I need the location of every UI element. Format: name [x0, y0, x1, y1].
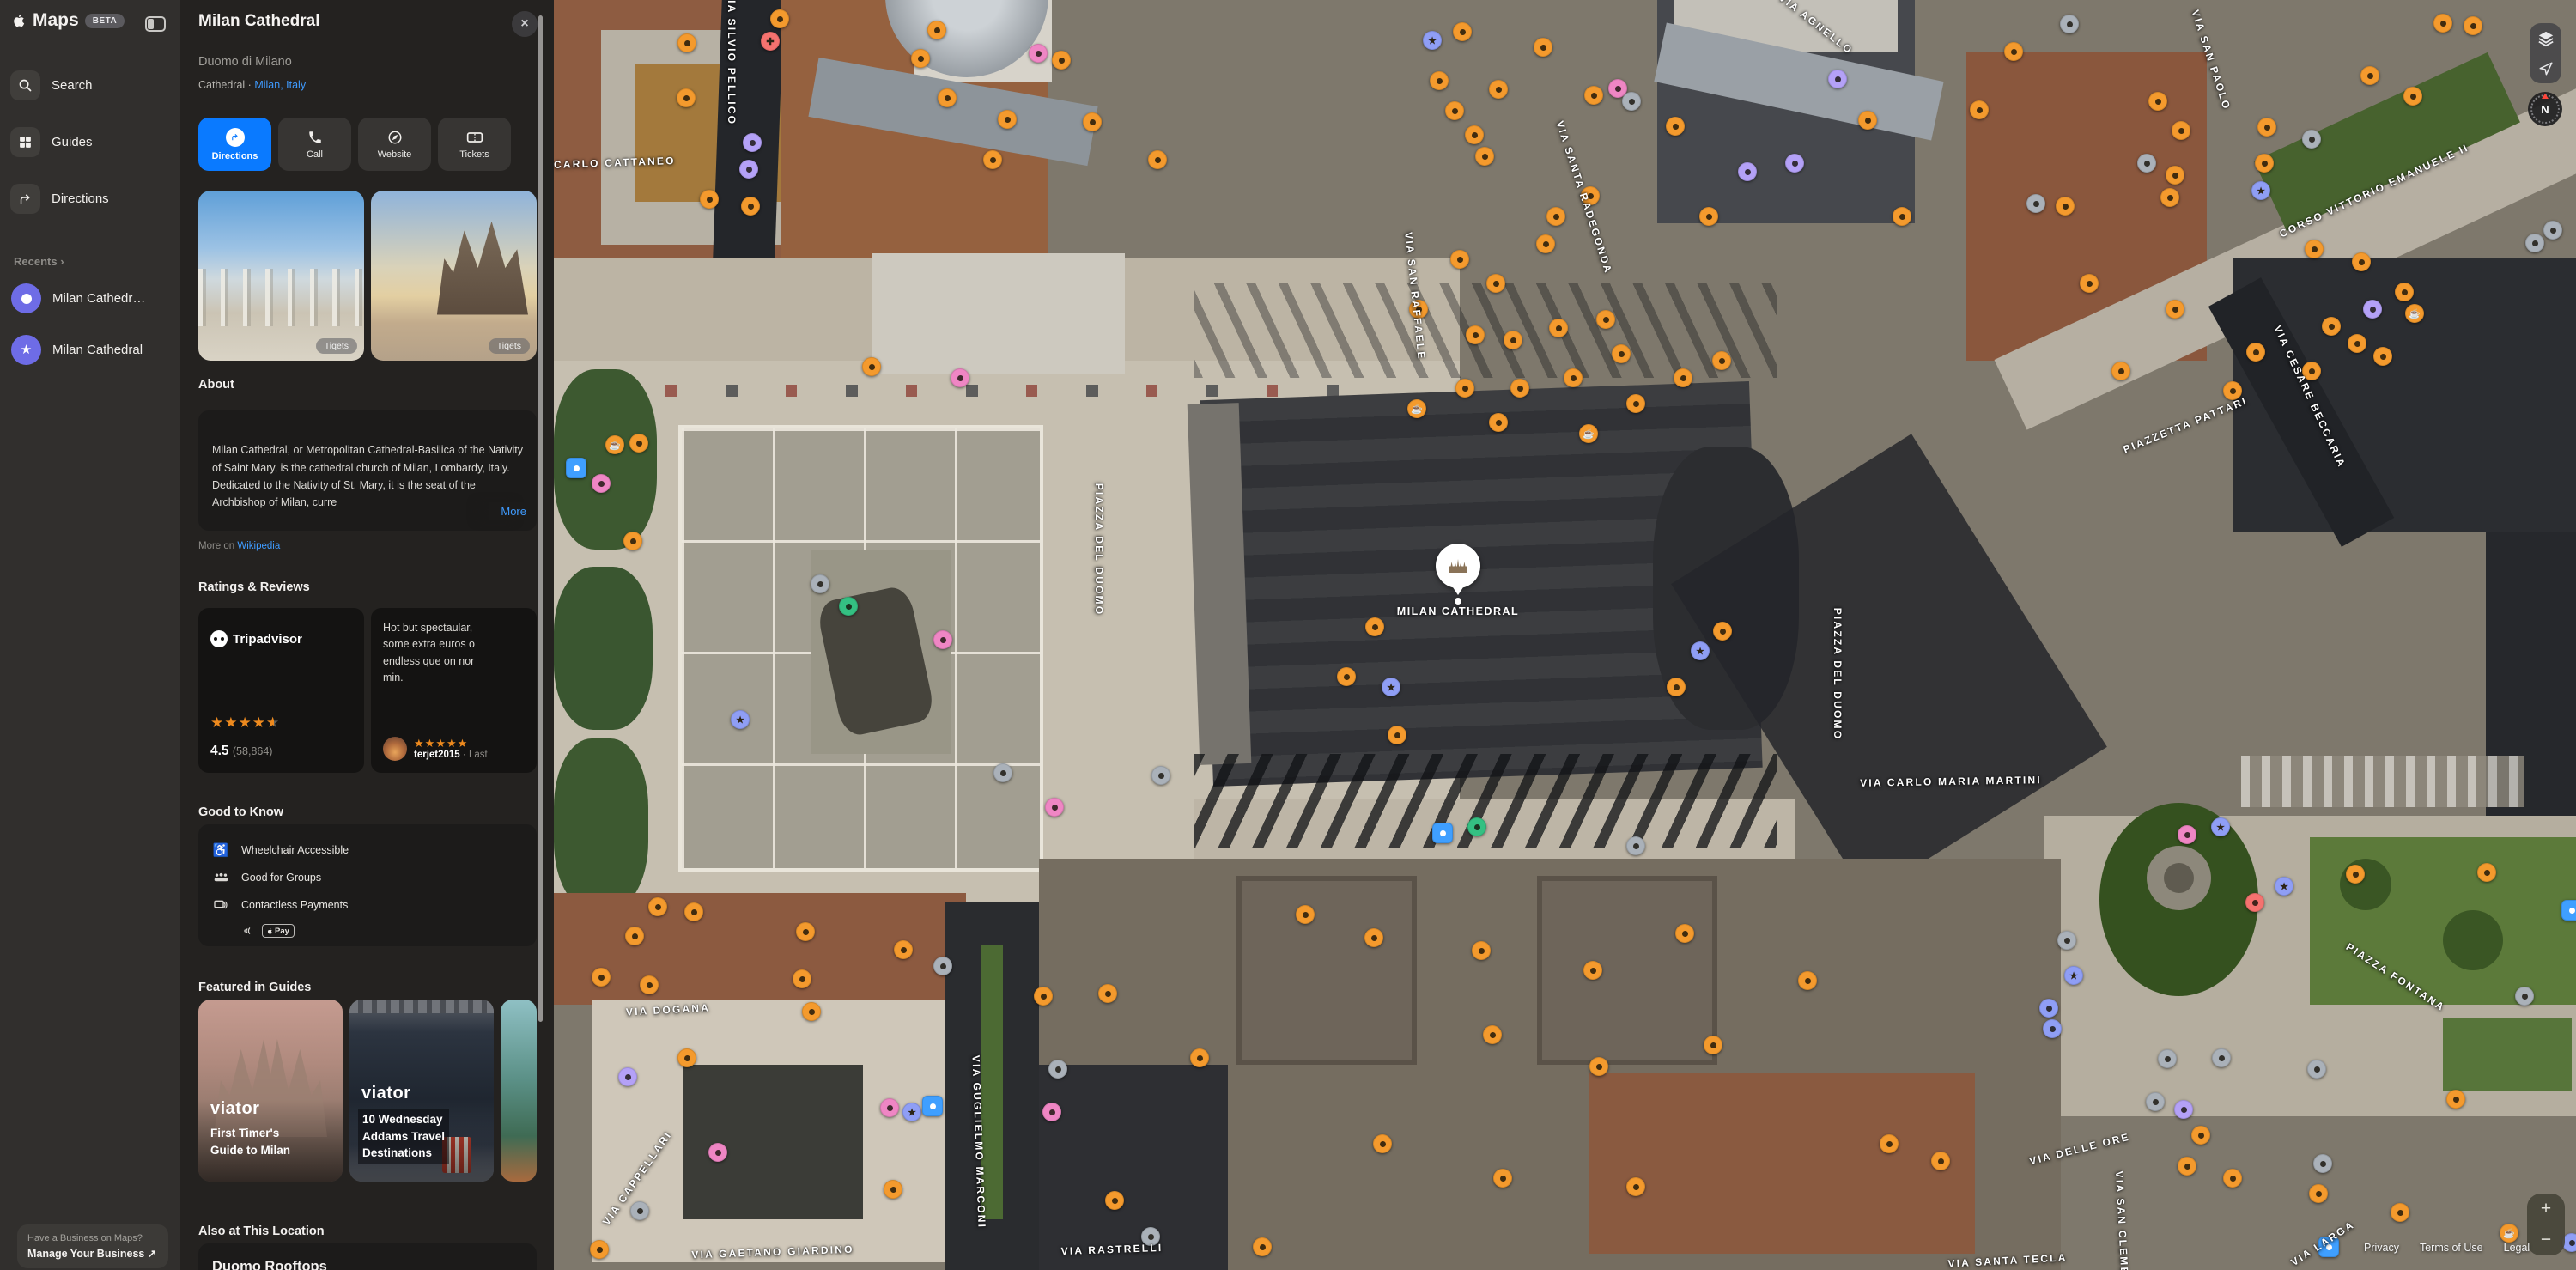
street-label: VIA SANTA TECLA — [1947, 1251, 2068, 1269]
sidebar-item-directions[interactable]: Directions — [10, 184, 109, 214]
star-icon: ★ — [458, 737, 469, 750]
map-poi-marker[interactable]: ★ — [1691, 641, 1710, 660]
map-poi-marker[interactable] — [1430, 71, 1449, 90]
reviews-heading: Ratings & Reviews — [198, 580, 310, 594]
star-icon: ★ — [239, 714, 252, 731]
map-poi-marker[interactable] — [741, 197, 760, 216]
map-poi-marker[interactable] — [2391, 1203, 2409, 1222]
cathedral-silhouette — [437, 222, 528, 315]
compass-control[interactable]: N — [2528, 92, 2562, 126]
street-label: PIAZZA DEL DUOMO — [1093, 483, 1105, 617]
map-poi-marker[interactable] — [1589, 1057, 1608, 1076]
map-poi-marker[interactable] — [2057, 931, 2076, 950]
map-poi-marker[interactable] — [1432, 823, 1453, 843]
map-poi-marker[interactable] — [2307, 1060, 2326, 1079]
map-poi-marker[interactable] — [2543, 221, 2562, 240]
map-poi-marker[interactable] — [640, 975, 659, 994]
map-poi-marker[interactable] — [629, 434, 648, 453]
guide-card[interactable] — [501, 1000, 537, 1182]
map-poi-marker[interactable] — [2305, 240, 2324, 258]
amenity-row: Contactless Payments — [212, 891, 523, 919]
map-poi-marker[interactable] — [1042, 1103, 1061, 1121]
map-poi-marker[interactable] — [623, 532, 642, 550]
map-poi-marker[interactable] — [2056, 197, 2075, 216]
map-poi-marker[interactable] — [2178, 825, 2196, 844]
map-poi-marker[interactable] — [2043, 1019, 2062, 1038]
map-poi-marker[interactable] — [700, 190, 719, 209]
map-poi-marker[interactable]: ★ — [2275, 877, 2293, 896]
cathedral-spires-texture — [198, 269, 364, 326]
viator-logo: viator — [210, 1099, 259, 1119]
map-poi-marker[interactable] — [1453, 22, 1472, 41]
street-label: VIA SAN PAOLO — [2189, 9, 2233, 112]
map-poi-marker[interactable] — [922, 1096, 943, 1116]
map-poi-marker[interactable] — [1493, 1169, 1512, 1188]
street-label: VIA SAN CLEMENTE — [2113, 1170, 2132, 1270]
street-label: PIAZZA FONTANA — [2344, 940, 2448, 1013]
map-poi-marker[interactable] — [1253, 1237, 1272, 1256]
map-poi-marker[interactable] — [708, 1143, 727, 1162]
map-poi-marker[interactable] — [1034, 987, 1053, 1006]
star-icon: ★ — [210, 714, 224, 731]
phone-icon — [307, 130, 323, 145]
sidebar-item-label: Search — [52, 78, 93, 93]
also-here-heading: Also at This Location — [198, 1224, 325, 1238]
photo-credit-badge: Tiqets — [316, 338, 357, 354]
map-poi-marker[interactable] — [1970, 100, 1989, 119]
map-poi-marker[interactable] — [1626, 394, 1645, 413]
about-more-link[interactable]: More — [489, 502, 526, 520]
map-poi-marker[interactable] — [1536, 234, 1555, 253]
map-poi-marker[interactable] — [1713, 622, 1732, 641]
manage-business-link[interactable]: Manage Your Business ↗ — [27, 1247, 161, 1260]
sidebar-item-search[interactable]: Search — [10, 70, 93, 100]
map-poi-marker[interactable] — [2004, 42, 2023, 61]
map-poi-marker[interactable] — [2246, 343, 2265, 362]
zoom-out-button[interactable]: − — [2541, 1230, 2551, 1250]
chevron-right-icon: › — [60, 255, 64, 268]
map-poi-marker[interactable] — [1365, 617, 1384, 636]
street-label: VIA LARGA — [2288, 1218, 2356, 1268]
map-poi-marker[interactable]: ★ — [902, 1103, 921, 1121]
map-poi-marker[interactable] — [2172, 121, 2190, 140]
place-photo[interactable]: Tiqets — [371, 191, 537, 361]
sidebar-item-guides[interactable]: Guides — [10, 127, 93, 157]
map-poi-marker[interactable] — [1364, 928, 1383, 947]
film-strip-texture — [349, 1000, 494, 1013]
map-poi-marker[interactable] — [630, 1201, 649, 1220]
map-poi-marker[interactable] — [677, 33, 696, 52]
about-text: Milan Cathedral, or Metropolitan Cathedr… — [212, 444, 523, 508]
map-poi-marker[interactable] — [811, 574, 829, 593]
guides-heading: Featured in Guides — [198, 981, 311, 994]
sidebar-toggle-icon[interactable] — [144, 14, 167, 34]
street-label: CORSO VITTORIO EMANUELE II — [2278, 142, 2471, 240]
website-button[interactable]: Website — [358, 118, 431, 171]
map-poi-marker[interactable]: ✚ — [761, 32, 780, 51]
map-poi-marker[interactable] — [2515, 987, 2534, 1006]
map-poi-marker[interactable] — [590, 1240, 609, 1259]
map-poi-marker[interactable]: ☕ — [2500, 1224, 2518, 1243]
star-icon: ★ — [435, 737, 447, 750]
layers-icon[interactable] — [2537, 30, 2555, 47]
review-count: (58,864) — [233, 745, 273, 757]
street-label: VIA SAN RAFFAELE — [1402, 232, 1428, 362]
map-poi-marker[interactable] — [770, 9, 789, 28]
map-controls — [2530, 23, 2561, 83]
review-text: Hot but spectaular, some extra euros o e… — [383, 620, 537, 687]
map-poi-marker[interactable] — [1098, 984, 1117, 1003]
map-poi-marker[interactable] — [983, 150, 1002, 169]
map-poi-marker[interactable] — [993, 763, 1012, 782]
map-poi-marker[interactable] — [2191, 1126, 2210, 1145]
map-poi-marker[interactable]: ★ — [2064, 966, 2083, 985]
marker-anchor-dot — [1455, 598, 1461, 605]
map-poi-marker[interactable] — [1048, 1060, 1067, 1079]
map-poi-marker[interactable] — [1858, 111, 1877, 130]
recent-item-label: Milan Cathedral — [52, 343, 143, 357]
map-poi-marker[interactable] — [1626, 1177, 1645, 1196]
selected-place-label: MILAN CATHEDRAL — [1397, 605, 1519, 617]
map-poi-marker[interactable] — [1296, 905, 1315, 924]
map-poi-marker[interactable] — [1704, 1036, 1722, 1054]
map-poi-marker[interactable] — [1880, 1134, 1899, 1153]
map-poi-marker[interactable] — [1472, 941, 1491, 960]
street-label: VIA DOGANA — [626, 1001, 711, 1018]
review-card[interactable]: Hot but spectaular, some extra euros o e… — [371, 608, 537, 773]
map-poi-marker[interactable] — [839, 597, 858, 616]
map-poi-marker[interactable] — [933, 630, 952, 649]
map-poi-marker[interactable] — [2255, 154, 2274, 173]
map-poi-marker[interactable] — [2223, 1169, 2242, 1188]
call-button[interactable]: Call — [278, 118, 351, 171]
map-poi-marker[interactable] — [648, 897, 667, 916]
place-photo[interactable]: Tiqets — [198, 191, 364, 361]
map-poi-marker[interactable] — [998, 110, 1017, 129]
street-label: VIA DELLE ORE — [2028, 1131, 2131, 1168]
map-poi-marker[interactable] — [1622, 92, 1641, 111]
tickets-button[interactable]: Tickets — [438, 118, 511, 171]
map-poi-marker[interactable] — [1931, 1152, 1950, 1170]
review-stars: ★★★★★ — [414, 738, 488, 750]
manage-business-card[interactable]: Have a Business on Maps? Manage Your Bus… — [17, 1224, 168, 1268]
map-poi-marker[interactable] — [2395, 283, 2414, 301]
search-icon — [10, 70, 40, 100]
map-poi-marker[interactable] — [933, 957, 952, 975]
street-label: PIAZZA DEL DUOMO — [1832, 608, 1844, 741]
star-icon: ★ — [224, 714, 238, 731]
map-poi-marker[interactable] — [862, 357, 881, 376]
rating-value: 4.5 — [210, 744, 229, 758]
map-poi-marker[interactable] — [2346, 865, 2365, 884]
map-poi-marker[interactable] — [1475, 147, 1494, 166]
map-poi-marker[interactable] — [1337, 667, 1356, 686]
sidebar-item-label: Directions — [52, 191, 109, 206]
location-dot-icon — [11, 283, 41, 313]
street-label: VIA GAETANO GIARDINO — [691, 1243, 854, 1261]
map-poi-marker[interactable] — [1534, 38, 1552, 57]
map-poi-marker[interactable] — [1445, 101, 1464, 120]
map-poi-marker[interactable] — [1465, 125, 1484, 144]
map-poi-marker[interactable] — [911, 49, 930, 68]
review-footer: ★★★★★ terjet2015 · Last — [383, 737, 488, 761]
map-poi-marker[interactable] — [1712, 351, 1731, 370]
recent-item[interactable]: Milan Cathedr… — [11, 283, 145, 313]
about-card: Milan Cathedral, or Metropolitan Cathedr… — [198, 410, 537, 531]
street-label: VIA SILVIO PELLICO — [726, 0, 738, 125]
map-poi-marker[interactable] — [894, 940, 913, 959]
map-poi-marker[interactable]: ★ — [731, 710, 750, 729]
map-poi-marker[interactable] — [802, 1002, 821, 1021]
map-poi-marker[interactable] — [566, 458, 586, 478]
street-label: VIA CARLO CATTANEO — [554, 155, 676, 172]
panel-scrollbar[interactable] — [538, 15, 543, 1022]
map-poi-marker[interactable]: ★ — [2251, 181, 2270, 200]
map-poi-marker[interactable] — [1052, 51, 1071, 70]
map-poi-marker[interactable]: ★ — [1382, 678, 1400, 696]
map-poi-marker[interactable] — [2464, 16, 2482, 35]
map-poi-marker[interactable] — [2160, 188, 2179, 207]
apple-pay-badge: Pay — [262, 924, 295, 938]
map-poi-marker[interactable] — [1828, 70, 1847, 88]
star-icon: ★ — [252, 714, 266, 731]
page-title: Milan Cathedral — [198, 12, 319, 31]
map-poi-marker[interactable] — [2026, 194, 2045, 213]
map-poi-marker[interactable] — [1699, 207, 1718, 226]
north-tick-icon — [2542, 94, 2549, 99]
map-poi-marker[interactable] — [1674, 368, 1692, 387]
star-icon: ★ — [425, 737, 436, 750]
contactless-wave-icon — [241, 924, 255, 938]
selected-place-marker[interactable] — [1436, 544, 1480, 588]
compass-website-icon — [387, 130, 403, 145]
map-poi-marker[interactable] — [2446, 1090, 2465, 1109]
map-poi-marker[interactable] — [1546, 207, 1565, 226]
map-poi-marker[interactable] — [2212, 1048, 2231, 1067]
map-poi-marker[interactable] — [2525, 234, 2544, 252]
map-poi-marker[interactable] — [2561, 900, 2576, 921]
photo-credit-badge: Tiqets — [489, 338, 530, 354]
street-label: VIA CARLO MARIA MARTINI — [1860, 774, 2042, 789]
map-poi-marker[interactable] — [938, 88, 957, 107]
directions-button[interactable]: Directions — [198, 118, 271, 171]
privacy-link[interactable]: Privacy — [2364, 1242, 2399, 1254]
map-poi-marker[interactable] — [592, 474, 611, 493]
rating-value-row: 4.5 (58,864) — [210, 744, 272, 759]
map-poi-marker[interactable] — [1893, 207, 1911, 226]
legal-link[interactable]: Legal — [2504, 1242, 2530, 1254]
map-poi-marker[interactable] — [1667, 678, 1686, 696]
groups-icon — [212, 872, 229, 883]
map-poi-marker[interactable] — [1626, 836, 1645, 855]
guide-title: First Timer's Guide to Milan — [210, 1125, 290, 1158]
map-poi-marker[interactable] — [2373, 347, 2392, 366]
map-poi-marker[interactable] — [1148, 150, 1167, 169]
map-poi-marker[interactable] — [2352, 252, 2371, 271]
street-label: VIA RASTRELLI — [1060, 1242, 1163, 1257]
map-poi-marker[interactable] — [2148, 92, 2167, 111]
tripadvisor-owl-icon — [210, 630, 228, 647]
map-poi-marker[interactable] — [1489, 80, 1508, 99]
guide-card[interactable]: viator First Timer's Guide to Milan — [198, 1000, 343, 1182]
map-poi-marker[interactable] — [1584, 86, 1603, 105]
map-poi-marker[interactable] — [1666, 117, 1685, 136]
zoom-control: + − — [2527, 1194, 2565, 1255]
map-poi-marker[interactable] — [2322, 317, 2341, 336]
map-poi-marker[interactable] — [2166, 300, 2184, 319]
wikipedia-link[interactable]: Wikipedia — [237, 541, 280, 551]
map-poi-marker[interactable] — [1489, 413, 1508, 432]
star-place-icon: ★ — [11, 335, 41, 365]
map-poi-marker[interactable] — [1612, 344, 1631, 363]
avatar — [383, 737, 407, 761]
map-poi-marker[interactable] — [2080, 274, 2099, 293]
sidebar-item-label: Guides — [52, 135, 93, 149]
map-poi-marker[interactable] — [884, 1180, 902, 1199]
map-poi-marker[interactable]: ★ — [2211, 817, 2230, 836]
close-icon[interactable]: × — [512, 11, 538, 37]
guide-card[interactable]: viator 10 Wednesday Addams Travel Destin… — [349, 1000, 494, 1182]
recents-header[interactable]: Recents › — [14, 255, 64, 268]
map-poi-marker[interactable] — [2178, 1157, 2196, 1176]
amenity-row: Good for Groups — [212, 864, 523, 891]
map-poi-marker[interactable] — [2309, 1184, 2328, 1203]
app-title: Maps — [33, 10, 79, 31]
compass-north-label: N — [2530, 94, 2560, 124]
map-poi-marker[interactable] — [1798, 971, 1817, 990]
map-poi-marker[interactable] — [2111, 362, 2130, 380]
guide-title: 10 Wednesday Addams Travel Destinations — [358, 1109, 449, 1164]
place-subtitle: Duomo di Milano — [198, 55, 292, 69]
map-poi-marker[interactable] — [1151, 766, 1170, 785]
map-poi-marker[interactable] — [2137, 154, 2156, 173]
map-poi-marker[interactable] — [2257, 118, 2276, 137]
map-poi-marker[interactable] — [2348, 334, 2366, 353]
map-poi-marker[interactable] — [927, 21, 946, 39]
map-poi-marker[interactable] — [677, 1048, 696, 1067]
map-poi-marker[interactable]: ☕ — [1407, 399, 1426, 418]
recent-item-label: Milan Cathedr… — [52, 291, 145, 306]
map-poi-marker[interactable] — [1583, 961, 1602, 980]
map-poi-marker[interactable] — [677, 88, 696, 107]
half-star-icon: ★★ — [266, 714, 280, 732]
map-poi-marker[interactable] — [2166, 166, 2184, 185]
ticket-icon — [466, 130, 483, 145]
map-poi-marker[interactable] — [1466, 325, 1485, 344]
viator-logo: viator — [361, 1084, 410, 1103]
map-poi-marker[interactable] — [2245, 893, 2264, 912]
directions-icon — [10, 184, 40, 214]
map-poi-marker[interactable] — [880, 1098, 899, 1117]
map-poi-marker[interactable] — [2174, 1100, 2193, 1119]
map-poi-marker[interactable] — [1467, 817, 1486, 836]
map-poi-marker[interactable]: ☕ — [2405, 304, 2424, 323]
map-poi-marker[interactable]: ★ — [1423, 31, 1442, 50]
map-poi-marker[interactable] — [2313, 1154, 2332, 1173]
apple-logo-icon — [12, 12, 27, 29]
location-link[interactable]: Milan, Italy — [254, 79, 306, 91]
map-poi-marker[interactable] — [2146, 1092, 2165, 1111]
map-poi-marker[interactable] — [2039, 999, 2058, 1018]
map-poi-marker[interactable] — [1675, 924, 1694, 943]
map-poi-marker[interactable] — [2060, 15, 2079, 33]
map-poi-marker[interactable] — [1450, 250, 1469, 269]
beta-badge: BETA — [85, 14, 125, 28]
map-poi-marker[interactable] — [1510, 379, 1529, 398]
map-poi-marker[interactable] — [1388, 726, 1406, 744]
map-poi-marker[interactable] — [1549, 319, 1568, 337]
place-category: Cathedral · Milan, Italy — [198, 79, 306, 91]
map-poi-marker[interactable] — [1455, 379, 1474, 398]
map-poi-marker[interactable] — [1190, 1048, 1209, 1067]
map-poi-marker[interactable] — [1373, 1134, 1392, 1153]
review-user: terjet2015 — [414, 750, 460, 760]
map-poi-marker[interactable] — [1486, 274, 1505, 293]
map-poi-marker[interactable] — [793, 969, 811, 988]
map-poi-marker[interactable] — [625, 927, 644, 945]
street-label: VIA CESARE BECCARIA — [2271, 324, 2348, 470]
map-poi-marker[interactable] — [2433, 14, 2452, 33]
map-poi-marker[interactable] — [1738, 162, 1757, 181]
street-label: VIA AGNELLO — [1777, 0, 1856, 57]
terms-link[interactable]: Terms of Use — [2420, 1242, 2483, 1254]
map-poi-marker[interactable]: ☕ — [605, 435, 624, 454]
map-poi-marker[interactable] — [1564, 368, 1583, 387]
recent-item[interactable]: ★ Milan Cathedral — [11, 335, 143, 365]
map-poi-marker[interactable] — [2302, 130, 2321, 149]
map-poi-marker[interactable] — [2477, 863, 2496, 882]
good-to-know-card: ♿ Wheelchair Accessible Good for Groups … — [198, 824, 537, 946]
map-poi-marker[interactable] — [1045, 798, 1064, 817]
satellite-map[interactable]: ✚☕★★★★☕☕★☕★★★☕★VIA CARLO CATTANEOVIA SIL… — [554, 0, 2576, 1270]
map-poi-marker[interactable] — [796, 922, 815, 941]
tripadvisor-logo: Tripadvisor — [210, 630, 302, 647]
star-icon: ★ — [447, 737, 458, 750]
map-poi-marker[interactable] — [951, 368, 969, 387]
map-poi-marker[interactable] — [739, 160, 758, 179]
good-to-know-heading: Good to Know — [198, 805, 283, 819]
place-detail-panel: Milan Cathedral × Duomo di Milano Cathed… — [180, 0, 554, 1270]
map-poi-marker[interactable] — [2363, 300, 2382, 319]
map-poi-marker[interactable] — [2403, 87, 2422, 106]
map-poi-marker[interactable] — [1483, 1025, 1502, 1044]
also-here-item: Duomo Rooftops — [212, 1259, 327, 1270]
map-poi-marker[interactable] — [1029, 44, 1048, 63]
map-poi-marker[interactable] — [1105, 1191, 1124, 1210]
map-poi-marker[interactable] — [684, 902, 703, 921]
map-poi-marker[interactable] — [743, 133, 762, 152]
also-here-card[interactable]: Duomo Rooftops — [198, 1243, 537, 1270]
map-poi-marker[interactable] — [1083, 112, 1102, 131]
zoom-in-button[interactable]: + — [2541, 1199, 2551, 1219]
tripadvisor-card[interactable]: Tripadvisor ★★★★★★ 4.5 (58,864) — [198, 608, 364, 773]
map-poi-marker[interactable] — [1785, 154, 1804, 173]
locate-me-icon[interactable] — [2538, 61, 2554, 76]
map-poi-marker[interactable] — [1504, 331, 1522, 349]
street-label: PIAZZETTA PATTARI — [2122, 395, 2250, 456]
map-poi-marker[interactable] — [618, 1067, 637, 1086]
map-poi-marker[interactable] — [592, 968, 611, 987]
business-question: Have a Business on Maps? — [27, 1233, 161, 1243]
map-annotations-layer: ✚☕★★★★☕☕★☕★★★☕★VIA CARLO CATTANEOVIA SIL… — [554, 0, 2576, 1270]
map-poi-marker[interactable] — [2360, 66, 2379, 85]
map-poi-marker[interactable] — [1596, 310, 1615, 329]
wikipedia-attribution: More on Wikipedia — [198, 541, 280, 551]
amenity-row: ♿ Wheelchair Accessible — [212, 836, 523, 864]
map-poi-marker[interactable]: ☕ — [1579, 424, 1598, 443]
legal-links: Privacy Terms of Use Legal — [2364, 1242, 2530, 1254]
map-poi-marker[interactable] — [2158, 1049, 2177, 1068]
